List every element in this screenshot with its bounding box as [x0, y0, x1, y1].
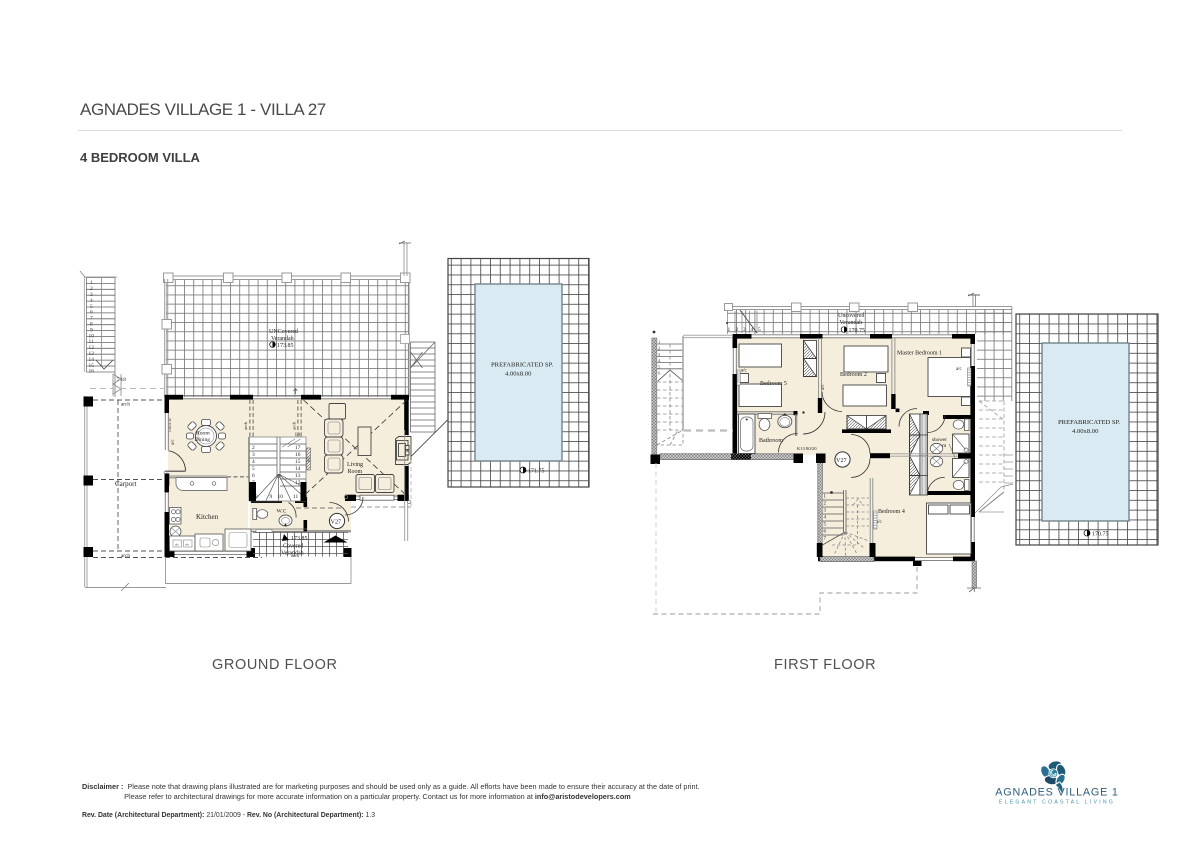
svg-text:Kitchen: Kitchen	[196, 513, 219, 521]
svg-text:4: 4	[751, 327, 754, 333]
svg-text:Carport: Carport	[115, 480, 136, 488]
svg-text:a/c: a/c	[741, 369, 747, 374]
svg-text:V27: V27	[331, 519, 342, 526]
svg-text:Dining: Dining	[195, 437, 211, 443]
svg-text:Room: Room	[196, 431, 210, 437]
svg-text:Bedroom 4: Bedroom 4	[878, 509, 905, 515]
svg-text:K13 80/20: K13 80/20	[797, 446, 817, 451]
svg-text:7 18: 7 18	[117, 377, 127, 383]
svg-text:5: 5	[758, 327, 761, 333]
svg-text:16: 16	[89, 369, 95, 375]
svg-text:10: 10	[278, 494, 284, 500]
svg-text:3: 3	[743, 327, 746, 333]
svg-text:e/c: e/c	[307, 456, 312, 462]
svg-text:2: 2	[252, 445, 255, 451]
svg-text:V27: V27	[836, 457, 847, 464]
svg-text:5: 5	[252, 466, 255, 472]
svg-text:Bedroom 2: Bedroom 2	[840, 372, 867, 378]
svg-text:1.00x1.20: 1.00x1.20	[168, 418, 172, 432]
svg-text:11: 11	[293, 494, 298, 500]
svg-text:171.75: 171.75	[528, 469, 545, 475]
svg-text:15: 15	[295, 459, 301, 465]
svg-text:6: 6	[658, 371, 661, 376]
svg-text:ELEGANT COASTAL LIVING: ELEGANT COASTAL LIVING	[999, 800, 1115, 806]
svg-text:173.85: 173.85	[291, 536, 308, 542]
svg-text:UNCovered: UNCovered	[269, 329, 298, 335]
svg-text:17: 17	[295, 445, 301, 451]
svg-text:AGNADES VILLAGE 1: AGNADES VILLAGE 1	[995, 787, 1118, 799]
svg-text:W.C: W.C	[277, 509, 287, 515]
svg-text:Uncovered: Uncovered	[838, 313, 864, 319]
svg-text:arch: arch	[243, 421, 248, 430]
svg-text:a/c: a/c	[956, 367, 962, 372]
svg-text:Verandah: Verandah	[271, 336, 294, 342]
svg-text:4.00x8.00: 4.00x8.00	[1072, 428, 1099, 435]
svg-text:Bedroom 5: Bedroom 5	[760, 381, 787, 387]
svg-text:Verandah: Verandah	[840, 320, 863, 326]
svg-text:do: do	[186, 543, 190, 547]
svg-text:a/c: a/c	[821, 384, 826, 390]
svg-text:16: 16	[295, 452, 301, 458]
svg-text:170.75: 170.75	[1092, 532, 1109, 538]
svg-text:13: 13	[295, 473, 301, 479]
svg-text:4.00x8.00: 4.00x8.00	[505, 371, 532, 378]
svg-text:PREFABRICATED SP.: PREFABRICATED SP.	[491, 362, 554, 369]
svg-text:173.85: 173.85	[277, 343, 294, 349]
svg-text:a/c: a/c	[171, 439, 176, 445]
svg-text:Room: Room	[348, 469, 363, 475]
svg-text:1: 1	[728, 327, 731, 333]
svg-text:arch: arch	[121, 402, 130, 408]
svg-text:Living: Living	[347, 462, 363, 468]
svg-text:2: 2	[736, 327, 739, 333]
svg-text:6: 6	[252, 473, 255, 479]
svg-text:do: do	[175, 543, 179, 547]
svg-text:PREFABRICATED SP.: PREFABRICATED SP.	[1058, 419, 1121, 426]
svg-text:Bathroom: Bathroom	[759, 438, 783, 444]
svg-text:Master Bedroom 1: Master Bedroom 1	[897, 351, 942, 357]
svg-text:3: 3	[252, 452, 255, 458]
svg-text:Covered: Covered	[283, 544, 303, 550]
svg-text:170.75: 170.75	[849, 328, 866, 334]
svg-text:arch: arch	[291, 553, 300, 558]
svg-text:9: 9	[270, 494, 273, 500]
svg-text:arch: arch	[292, 421, 297, 430]
svg-text:12: 12	[295, 480, 301, 486]
svg-text:arch: arch	[121, 553, 130, 559]
svg-text:18: 18	[295, 432, 301, 438]
svg-text:4: 4	[252, 459, 255, 465]
svg-text:14: 14	[295, 466, 301, 472]
